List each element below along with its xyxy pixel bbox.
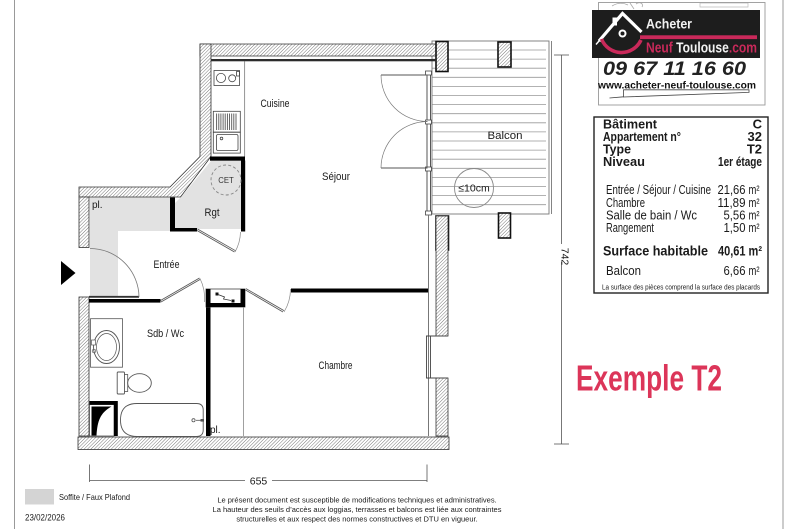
svg-text:m²: m² xyxy=(749,183,760,197)
svg-text:40,61 m²: 40,61 m² xyxy=(718,243,762,259)
svg-text:Balcon: Balcon xyxy=(606,264,641,278)
svg-text:Neuf Toulouse.com: Neuf Toulouse.com xyxy=(646,40,757,57)
svg-text:La hauteur des seuils d’accès: La hauteur des seuils d’accès aux loggia… xyxy=(213,505,502,514)
svg-text:Surface habitable: Surface habitable xyxy=(603,243,708,259)
svg-text:1,50: 1,50 xyxy=(724,221,746,235)
svg-text:Soffite / Faux Plafond: Soffite / Faux Plafond xyxy=(59,492,130,502)
svg-text:structurelles et aux respect d: structurelles et aux respect des normes … xyxy=(236,515,477,524)
svg-text:Exemple T2: Exemple T2 xyxy=(576,358,722,399)
svg-text:Entrée / Séjour / Cuisine: Entrée / Séjour / Cuisine xyxy=(606,183,711,197)
svg-text:21,66: 21,66 xyxy=(718,183,746,197)
svg-text:Niveau: Niveau xyxy=(603,154,645,169)
svg-text:1er étage: 1er étage xyxy=(718,154,762,169)
svg-text:Entrée: Entrée xyxy=(154,259,180,271)
svg-text:Cuisine: Cuisine xyxy=(261,98,290,110)
svg-text:23/02/2026: 23/02/2026 xyxy=(25,513,65,523)
svg-text:m²: m² xyxy=(749,264,760,278)
svg-text:Balcon: Balcon xyxy=(488,130,523,142)
svg-text:Rgt: Rgt xyxy=(205,207,220,219)
svg-text:pl.: pl. xyxy=(210,425,221,436)
svg-text:Rangement: Rangement xyxy=(606,221,654,235)
svg-text:CET: CET xyxy=(218,175,234,185)
svg-text:Le présent document est suscep: Le présent document est susceptible de m… xyxy=(217,496,496,505)
svg-text:09 67 11 16 60: 09 67 11 16 60 xyxy=(603,59,746,80)
svg-text:655: 655 xyxy=(250,476,268,488)
svg-text:La surface des pièces comprend: La surface des pièces comprend la surfac… xyxy=(602,285,760,292)
svg-text:Acheter: Acheter xyxy=(646,17,693,32)
svg-text:6,66: 6,66 xyxy=(724,264,746,278)
svg-text:m²: m² xyxy=(749,221,760,235)
svg-text:Chambre: Chambre xyxy=(319,360,353,372)
svg-text:Sdb / Wc: Sdb / Wc xyxy=(147,328,184,340)
svg-text:≤10cm: ≤10cm xyxy=(458,183,490,195)
svg-text:742: 742 xyxy=(559,248,571,266)
svg-text:Séjour: Séjour xyxy=(322,171,350,183)
svg-text:pl.: pl. xyxy=(92,200,103,211)
